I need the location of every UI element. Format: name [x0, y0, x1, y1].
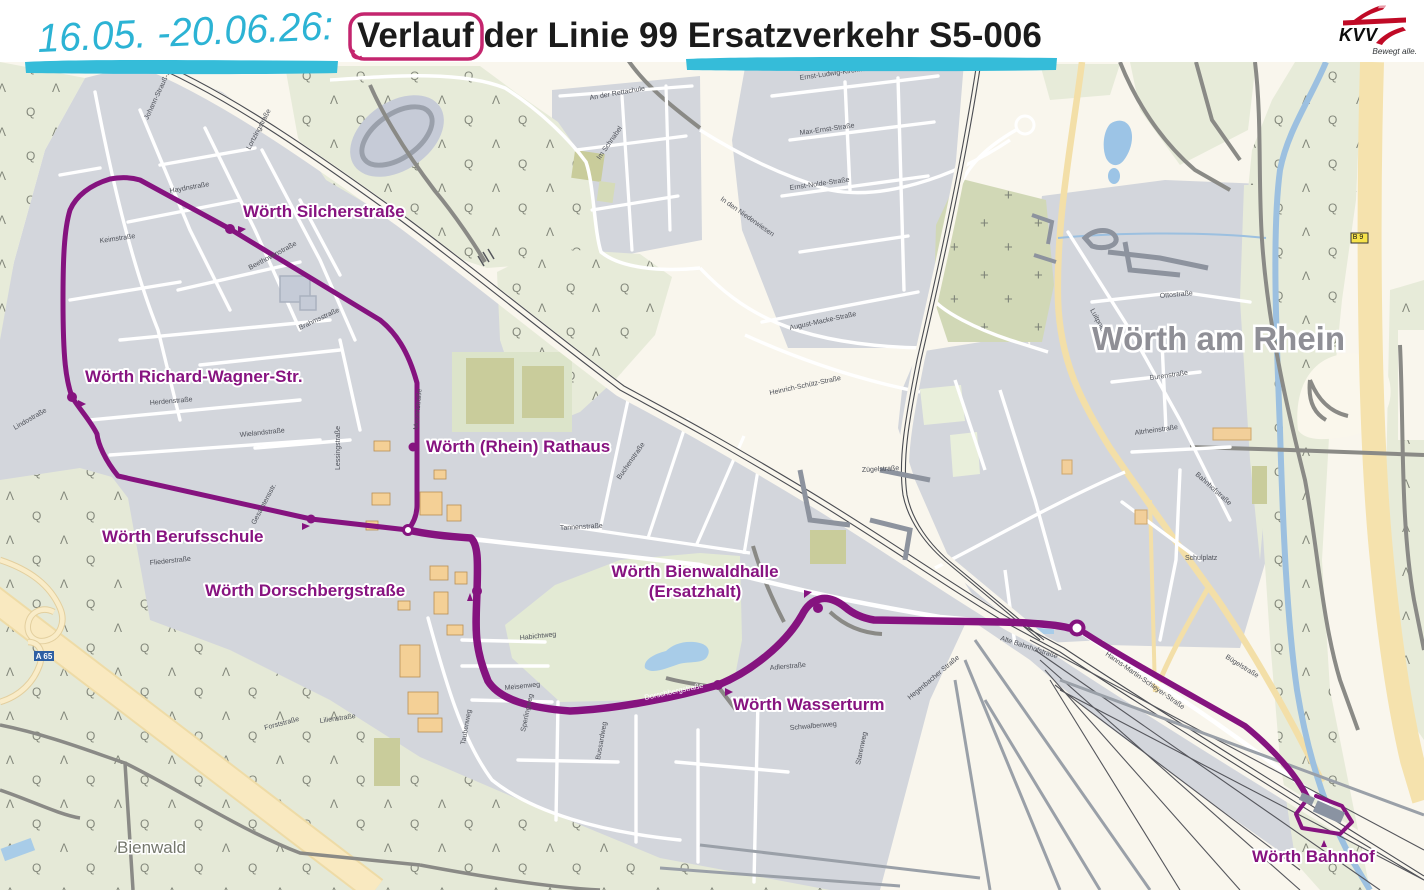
svg-text:B 9: B 9 [1353, 234, 1364, 241]
svg-text:Wörth Dorschbergstraße: Wörth Dorschbergstraße [205, 581, 405, 600]
svg-text:Wörth Silcherstraße: Wörth Silcherstraße [243, 202, 405, 221]
svg-text:Bewegt alle.: Bewegt alle. [1372, 47, 1417, 56]
svg-text:(Ersatzhalt): (Ersatzhalt) [649, 582, 742, 601]
svg-text:Wörth Berufsschule: Wörth Berufsschule [102, 527, 264, 546]
svg-text:Wörth (Rhein) Rathaus: Wörth (Rhein) Rathaus [426, 437, 610, 456]
svg-text:Schulplatz: Schulplatz [1185, 555, 1218, 562]
svg-text:Wörth Richard-Wagner-Str.: Wörth Richard-Wagner-Str. [85, 367, 303, 386]
svg-text:Wörth Wasserturm: Wörth Wasserturm [733, 695, 884, 714]
svg-text:Bienwald: Bienwald [117, 838, 186, 857]
svg-text:Wörth am Rhein: Wörth am Rhein [1092, 320, 1345, 357]
svg-text:Wörth Bahnhof: Wörth Bahnhof [1252, 847, 1375, 866]
svg-text:Lessingstraße: Lessingstraße [335, 426, 342, 470]
svg-text:Wörth Bienwaldhalle: Wörth Bienwaldhalle [611, 562, 778, 581]
svg-text:KVV: KVV [1339, 25, 1379, 45]
svg-text:A 65: A 65 [36, 652, 53, 661]
svg-text:Verlauf der Linie 99 Ersatzver: Verlauf der Linie 99 Ersatzverkehr S5-00… [357, 16, 1042, 55]
